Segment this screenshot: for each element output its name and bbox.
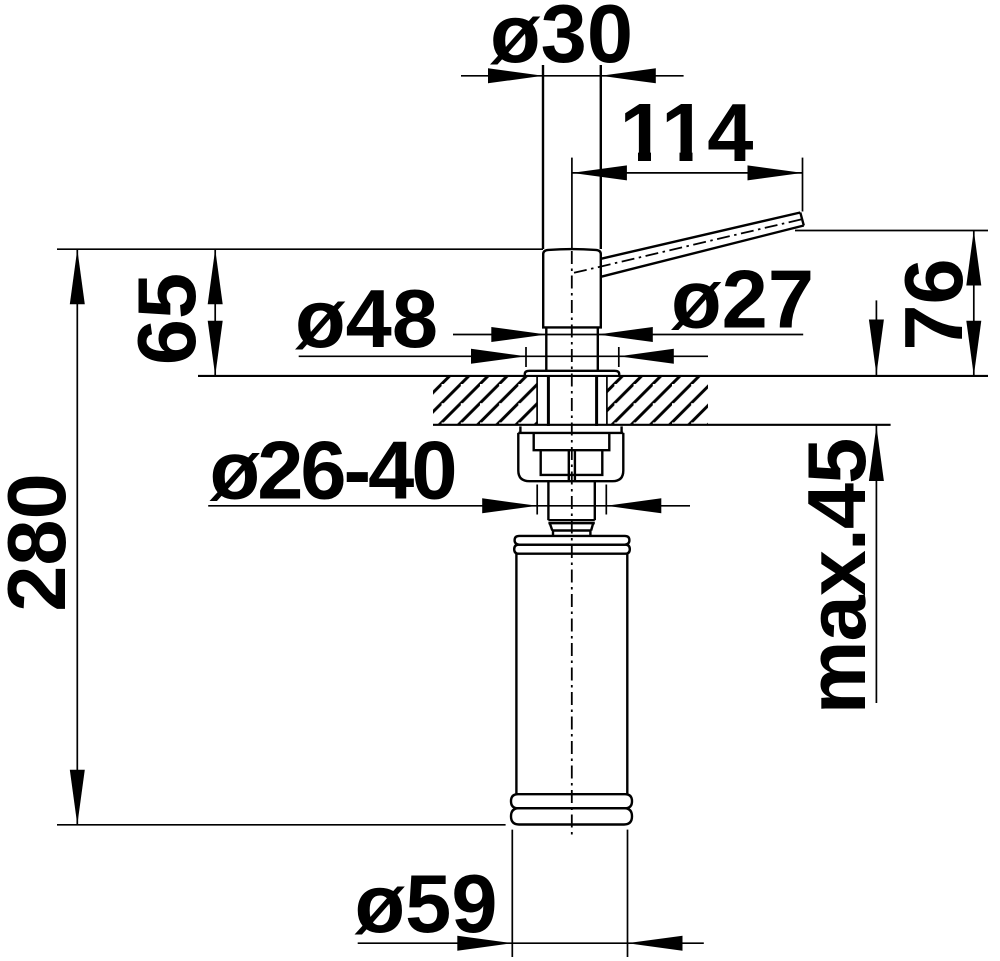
svg-text:65: 65	[120, 273, 213, 365]
svg-text:ø48: ø48	[295, 272, 438, 365]
svg-text:ø26-40: ø26-40	[210, 424, 455, 517]
svg-text:280: 280	[0, 473, 83, 611]
svg-text:ø27: ø27	[671, 253, 814, 346]
svg-text:ø59: ø59	[354, 857, 497, 950]
svg-text:114: 114	[620, 86, 754, 179]
svg-text:ø30: ø30	[490, 0, 633, 80]
svg-text:76: 76	[887, 258, 980, 350]
